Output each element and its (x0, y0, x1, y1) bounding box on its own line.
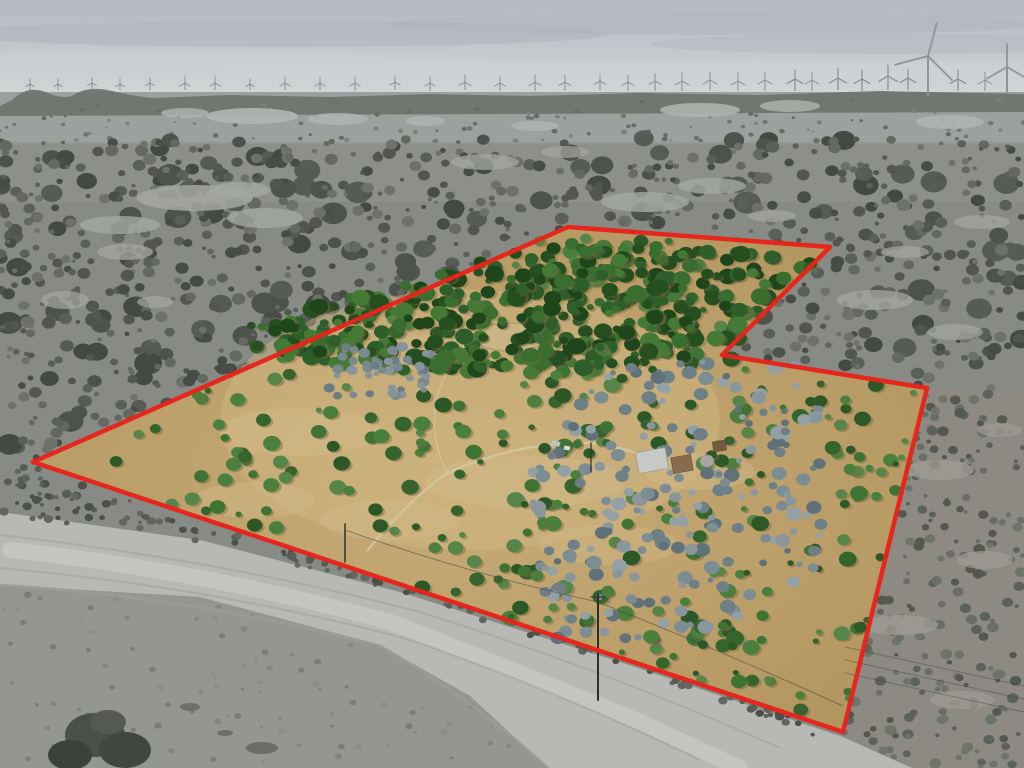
small-cabin (712, 440, 726, 452)
tree-crown (90, 710, 126, 734)
photo-canvas (0, 0, 1024, 768)
shed-rust-roof (671, 454, 693, 473)
aerial-photo-svg (0, 0, 1024, 768)
tree-crown (99, 732, 151, 768)
dome-tent (700, 455, 714, 467)
aerial-property-photo (0, 0, 1024, 768)
